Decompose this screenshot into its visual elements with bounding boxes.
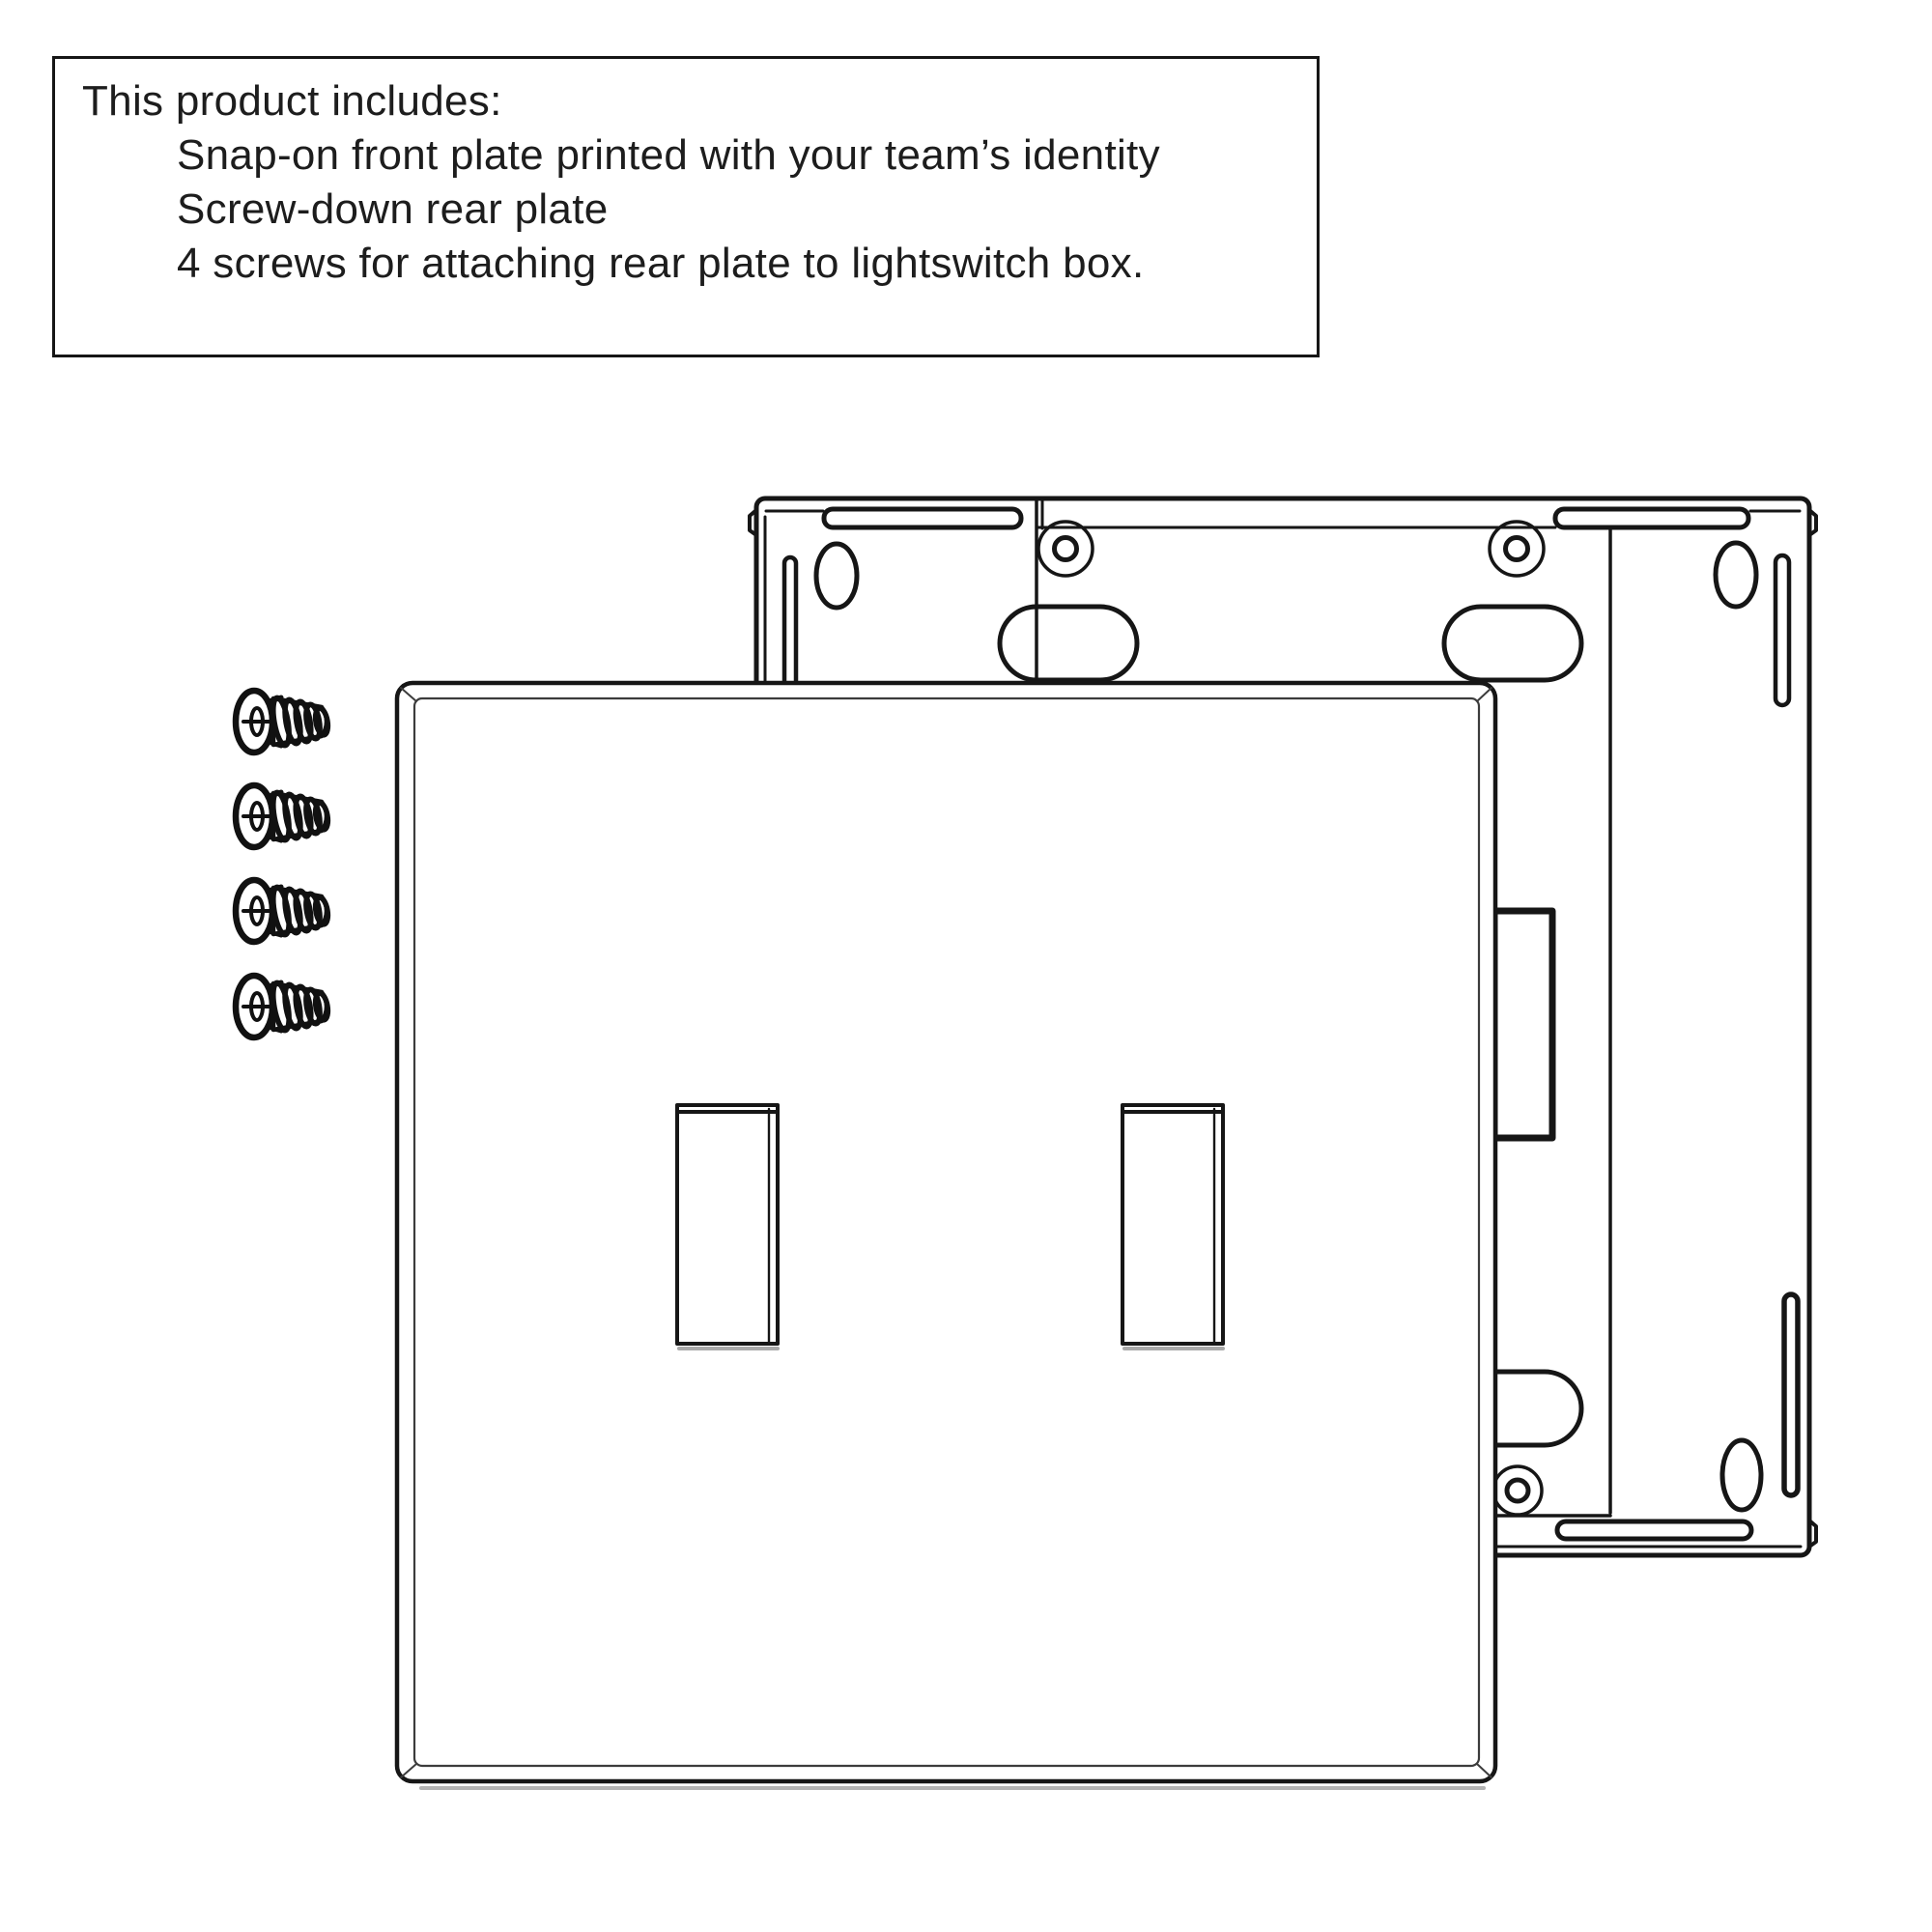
product-diagram bbox=[0, 0, 1932, 1932]
page: This product includes: Snap-on front pla… bbox=[0, 0, 1932, 1932]
screw-3 bbox=[236, 880, 329, 942]
screw-4 bbox=[236, 976, 329, 1037]
diagram-canvas bbox=[0, 0, 1932, 1932]
front-plate bbox=[397, 683, 1495, 1788]
screws bbox=[236, 691, 329, 1037]
front-plate-outline bbox=[397, 683, 1495, 1781]
screw-2 bbox=[236, 785, 329, 847]
screw-1 bbox=[236, 691, 329, 753]
